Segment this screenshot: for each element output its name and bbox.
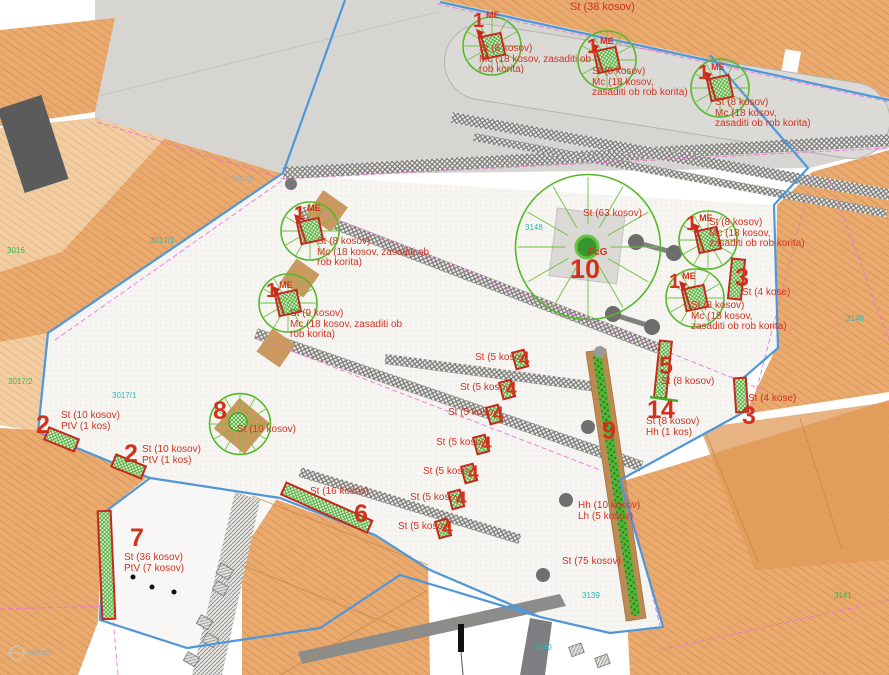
planter2b-note: St (10 kosov)PtV (1 kos) bbox=[142, 445, 201, 466]
tree-note: St (8 kosov)Mc (18 kosov,zasaditi ob rob… bbox=[709, 218, 805, 250]
center-circle-count: St (63 kosov) bbox=[583, 209, 642, 220]
tree-note: St (8 kosov)Mc (18 kosov,zasaditi ob rob… bbox=[715, 98, 811, 130]
planter6-number: 6 bbox=[354, 502, 368, 527]
tree-note: St (9 kosov)Mc (18 kosov, zasaditi obrob… bbox=[290, 309, 402, 341]
row-planter-number: 4 bbox=[506, 380, 517, 399]
tree-note: St (8 kosov)Mc (18 kosov,zasaditi ob rob… bbox=[691, 301, 787, 333]
parcel-number: 3148 bbox=[846, 314, 864, 323]
planter2a-number: 2 bbox=[36, 413, 50, 438]
planter2a-note: St (10 kosov)PtV (1 kos) bbox=[61, 411, 120, 432]
street-count-label: St (38 kosov) bbox=[570, 2, 635, 13]
planter3b-number: 3 bbox=[742, 404, 756, 429]
tree-tag: 1ME bbox=[587, 37, 614, 57]
hedge-note: Hh (10 kosov)Lh (5 kosov) bbox=[578, 501, 640, 522]
planter5-note: St (8 kosov) bbox=[661, 377, 714, 388]
row-planter-number: 4 bbox=[481, 435, 492, 454]
planter9-number: 9 bbox=[602, 419, 616, 444]
row-planter-number: 4 bbox=[442, 519, 453, 538]
planter7-note: St (36 kosov)PtV (7 kosov) bbox=[124, 553, 184, 574]
parcel-number: 3017/1 bbox=[150, 236, 174, 245]
parcel-number: 3016 bbox=[7, 246, 25, 255]
parcel-number: 3148 bbox=[525, 223, 543, 232]
tree-note: St (8 kosov)Mc (18 kosov, zasaditi obrob… bbox=[317, 237, 429, 269]
strip-count: St (75 kosov) bbox=[562, 557, 621, 568]
tree-tag: 1ME bbox=[294, 204, 321, 224]
planter3b-note: St (4 kose) bbox=[748, 394, 796, 405]
planter14-note: St (8 kosov)Hh (1 kos) bbox=[646, 417, 699, 438]
tree-tag: 1ME bbox=[669, 272, 696, 292]
elevation-label: 399.25 bbox=[232, 176, 253, 183]
planter6-note: St (16 kosov) bbox=[310, 487, 369, 498]
circle8-count: St (10 kosov) bbox=[237, 425, 296, 436]
elevation-label: 399.65 bbox=[28, 650, 49, 657]
tree-note: St (8 kosov)Mc (18 kosov, zasaditi obrob… bbox=[479, 44, 591, 76]
tree-tag: 1ME bbox=[473, 11, 500, 31]
parcel-number: 3140 bbox=[534, 643, 552, 652]
parcel-number: 3141 bbox=[834, 591, 852, 600]
planting-plan-canvas: St (38 kosov) 1ME St (8 kosov)Mc (18 kos… bbox=[0, 0, 889, 675]
planter2b-number: 2 bbox=[124, 442, 138, 467]
tree-tag: 1ME bbox=[698, 63, 725, 83]
row-planter-number: 4 bbox=[468, 464, 479, 483]
planter3a-note: St (4 kose) bbox=[742, 288, 790, 299]
row-planter-number: 4 bbox=[493, 405, 504, 424]
parcel-number: 3017/1 bbox=[112, 391, 136, 400]
tree-tag: 1ME bbox=[266, 281, 293, 301]
parcel-number: 3017/2 bbox=[8, 377, 32, 386]
parcel-number: 3139 bbox=[582, 591, 600, 600]
circle8-number: 8 bbox=[213, 399, 227, 424]
row-planter-number: 4 bbox=[456, 490, 467, 509]
tree-note: St (8 kosov)Mc (18 kosov,zasaditi ob rob… bbox=[592, 67, 688, 99]
row-planter-number: 4 bbox=[519, 350, 530, 369]
planter7-number: 7 bbox=[130, 526, 144, 551]
center-circle-number: 10 bbox=[570, 256, 600, 283]
north-bar bbox=[458, 624, 464, 652]
